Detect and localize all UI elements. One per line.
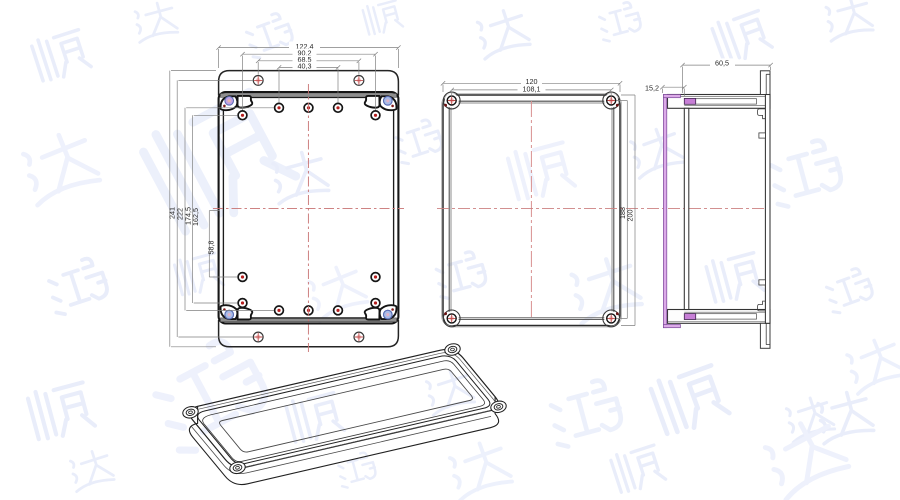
svg-text:162,5: 162,5	[191, 208, 200, 226]
svg-text:60,5: 60,5	[715, 59, 729, 68]
svg-text:108,1: 108,1	[523, 84, 541, 93]
svg-text:15,2: 15,2	[645, 83, 659, 92]
svg-text:200: 200	[625, 210, 634, 222]
svg-text:40,3: 40,3	[298, 62, 312, 71]
svg-text:58,8: 58,8	[207, 241, 216, 255]
